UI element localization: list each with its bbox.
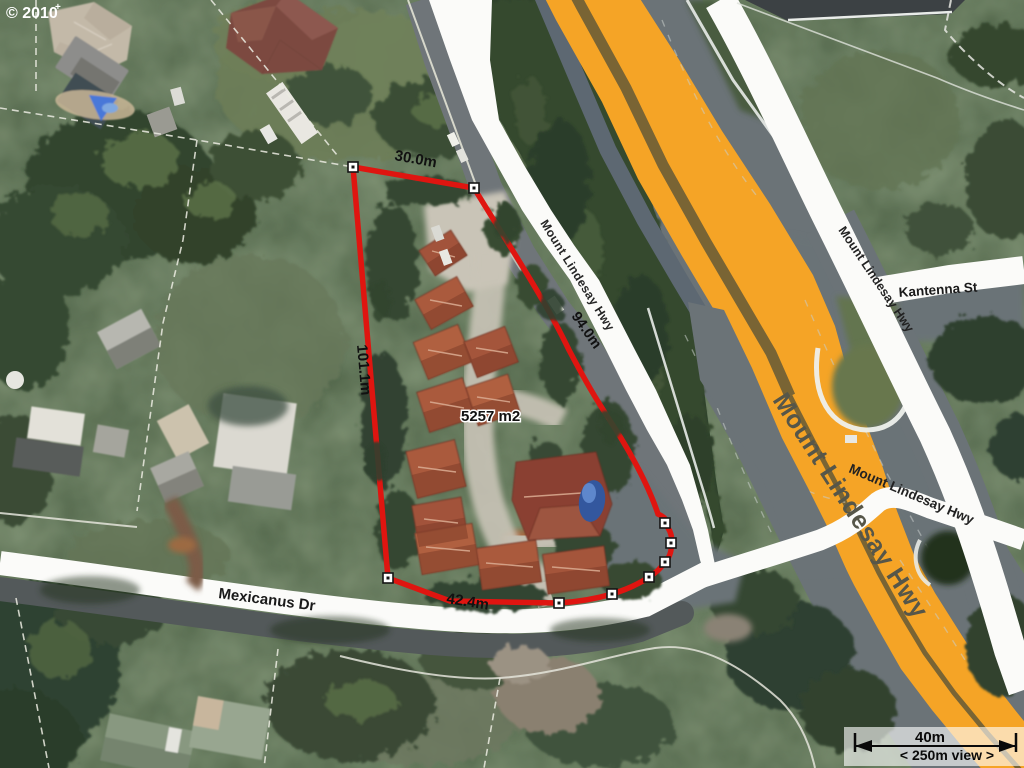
svg-text:© 2010: © 2010 [6, 5, 58, 22]
svg-text:5257 m2: 5257 m2 [461, 408, 520, 425]
svg-text:+: + [55, 2, 61, 13]
svg-text:< 250m view >: < 250m view > [900, 747, 994, 763]
svg-text:40m: 40m [915, 729, 945, 746]
